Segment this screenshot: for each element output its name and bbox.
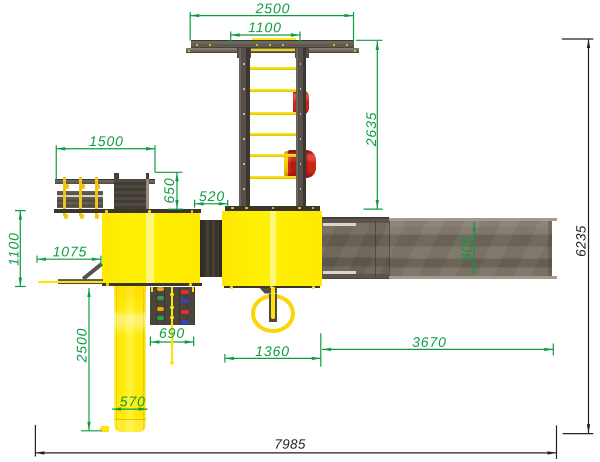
svg-text:7985: 7985 [274,437,306,452]
svg-text:1100: 1100 [248,19,282,35]
svg-text:1360: 1360 [255,343,290,359]
svg-text:2500: 2500 [255,0,291,16]
svg-text:1500: 1500 [89,133,124,149]
svg-text:2500: 2500 [74,328,90,364]
svg-text:1100: 1100 [5,232,21,266]
svg-text:3670: 3670 [412,334,447,350]
svg-text:570: 570 [120,393,146,409]
svg-text:6235: 6235 [574,225,589,257]
svg-text:690: 690 [159,325,185,341]
svg-text:1075: 1075 [53,243,88,259]
svg-text:650: 650 [161,177,177,203]
svg-text:520: 520 [199,188,225,204]
svg-text:805: 805 [458,235,474,261]
svg-text:2635: 2635 [363,112,379,148]
